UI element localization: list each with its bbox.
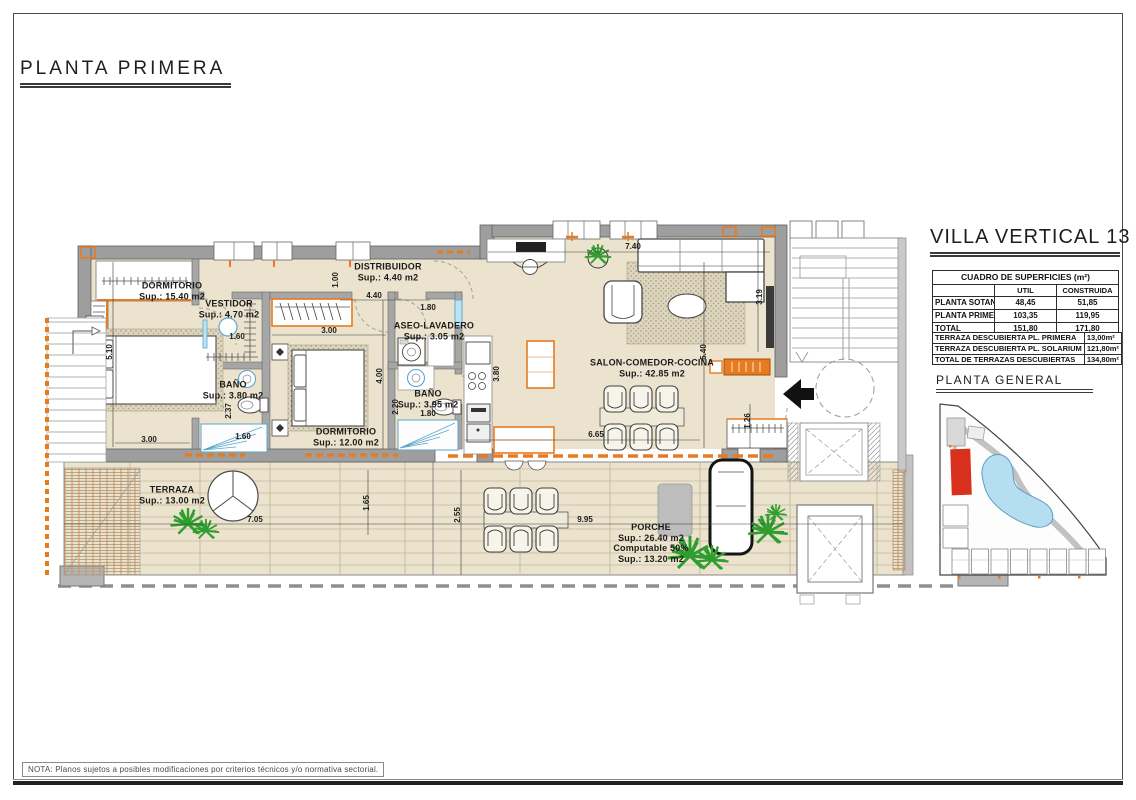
col-header-construida: CONSTRUIDA — [1057, 284, 1119, 296]
table-row: PLANTA PRIMERA 103,35 119,95 — [933, 310, 1119, 323]
entrance-arrow-icon — [783, 379, 814, 409]
surfaces-table-title: CUADRO DE SUPERFICIES (m²) — [933, 271, 1119, 285]
highlighted-villa — [950, 449, 972, 496]
table-row: PLANTA SOTANO 48,45 51,85 — [933, 297, 1119, 310]
project-title: VILLA VERTICAL 13 — [930, 226, 1120, 257]
surfaces-table: CUADRO DE SUPERFICIES (m²) UTIL CONSTRUI… — [932, 270, 1119, 336]
table-row: TOTAL DE TERRAZAS DESCUBIERTAS 134,80m² — [933, 354, 1122, 365]
elevator-shaft — [788, 423, 880, 604]
terrace-furniture — [208, 471, 258, 521]
site-plan-map — [940, 404, 1106, 579]
col-header-util: UTIL — [995, 284, 1057, 296]
table-row: TERRAZA DESCUBIERTA PL. SOLARIUM 121,80m… — [933, 343, 1122, 354]
table-row: TERRAZA DESCUBIERTA PL. PRIMERA 13,00m² — [933, 333, 1122, 344]
site-plan-title: PLANTA GENERAL — [936, 373, 1093, 393]
floor-plan-drawing — [0, 0, 1136, 800]
site-building-gray — [947, 418, 965, 446]
dining-set — [600, 386, 684, 450]
terraces-table: TERRAZA DESCUBIERTA PL. PRIMERA 13,00m² … — [932, 332, 1122, 365]
footer-note: NOTA: Planos sujetos a posibles modifica… — [22, 762, 384, 777]
